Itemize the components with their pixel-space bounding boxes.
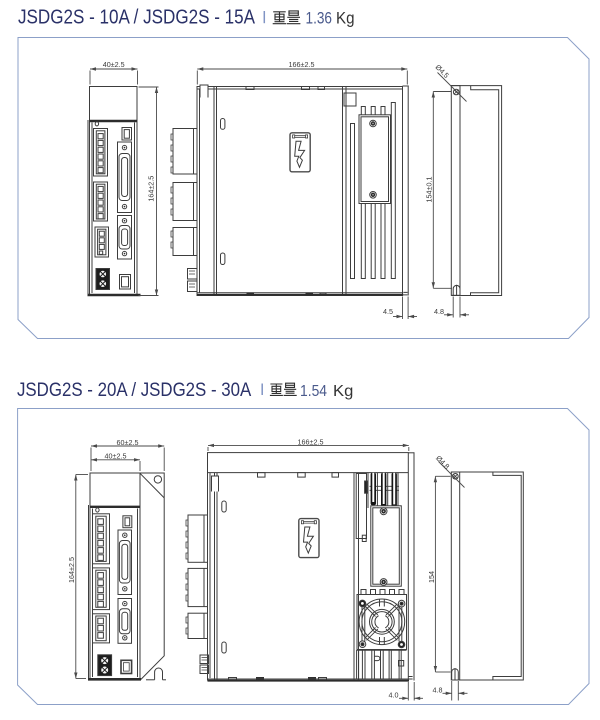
- svg-text:154±0.1: 154±0.1: [425, 177, 434, 203]
- svg-text:4.5: 4.5: [383, 307, 393, 316]
- svg-text:JSDG2S - 10A / JSDG2S - 15A: JSDG2S - 10A / JSDG2S - 15A: [18, 7, 256, 29]
- svg-text:4.0: 4.0: [389, 690, 399, 699]
- svg-text:1.36: 1.36: [306, 10, 333, 28]
- svg-text:JSDG2S - 20A / JSDG2S - 30A: JSDG2S - 20A / JSDG2S - 30A: [17, 380, 252, 401]
- svg-text:Kg: Kg: [333, 383, 353, 400]
- svg-text:164±2.5: 164±2.5: [146, 176, 155, 202]
- svg-text:154: 154: [427, 571, 436, 583]
- svg-text:164±2.5: 164±2.5: [67, 557, 76, 583]
- svg-text:1.54: 1.54: [300, 383, 327, 400]
- svg-text:Ø4.5: Ø4.5: [434, 63, 451, 80]
- svg-text:40±2.5: 40±2.5: [103, 60, 125, 69]
- svg-text:166±2.5: 166±2.5: [289, 60, 315, 69]
- svg-text:4.8: 4.8: [434, 307, 444, 316]
- svg-text:166±2.5: 166±2.5: [298, 437, 324, 446]
- svg-text:60±2.5: 60±2.5: [117, 438, 139, 447]
- svg-text:Ø4.8: Ø4.8: [434, 454, 451, 471]
- svg-text:Kg: Kg: [336, 10, 355, 28]
- svg-text:4.8: 4.8: [433, 685, 443, 694]
- svg-text:40±2.5: 40±2.5: [105, 452, 127, 461]
